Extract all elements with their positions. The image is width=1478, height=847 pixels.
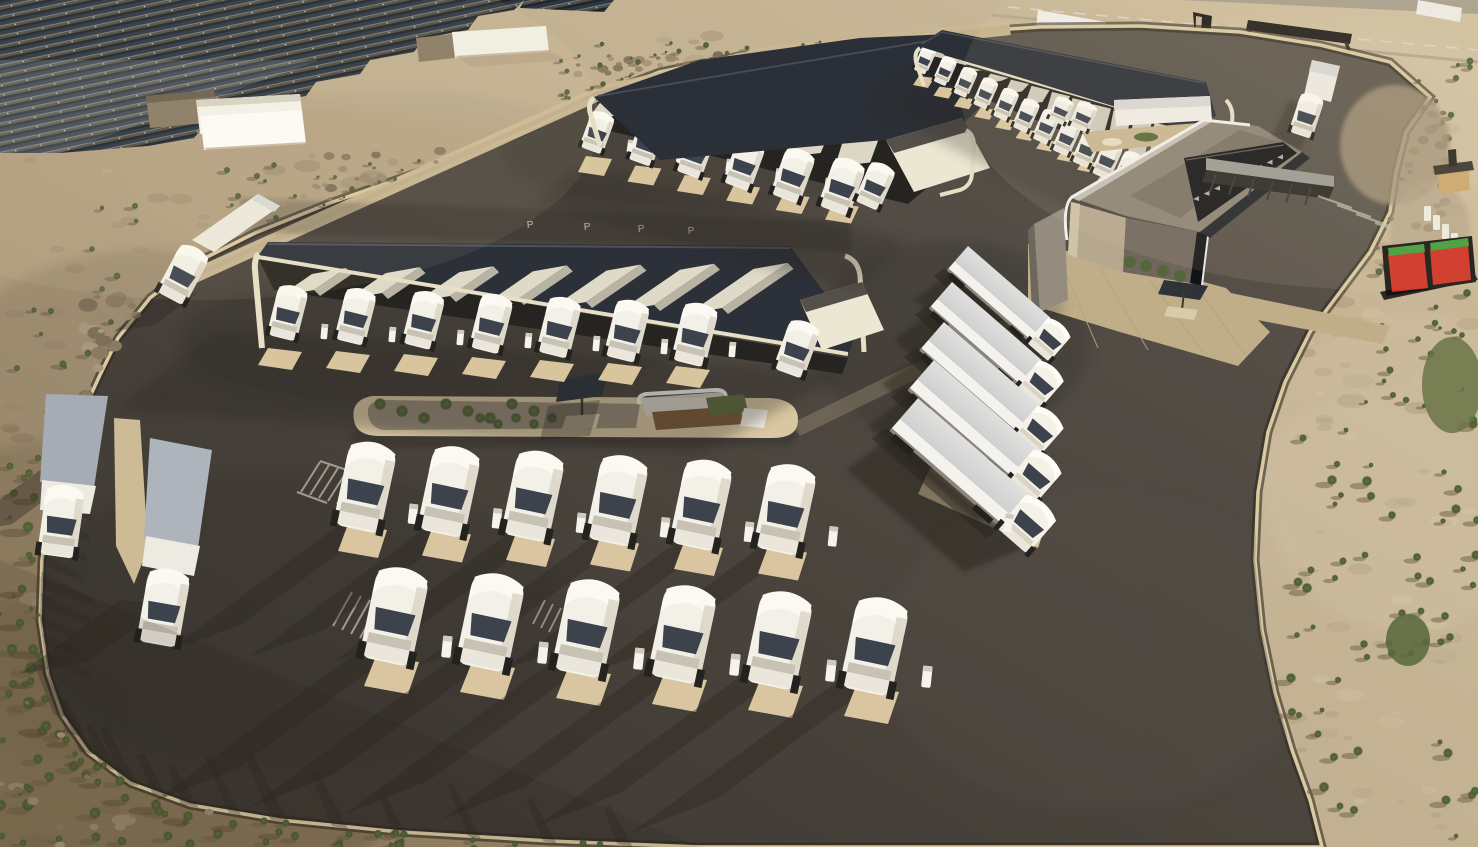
svg-text:P: P xyxy=(583,222,591,233)
